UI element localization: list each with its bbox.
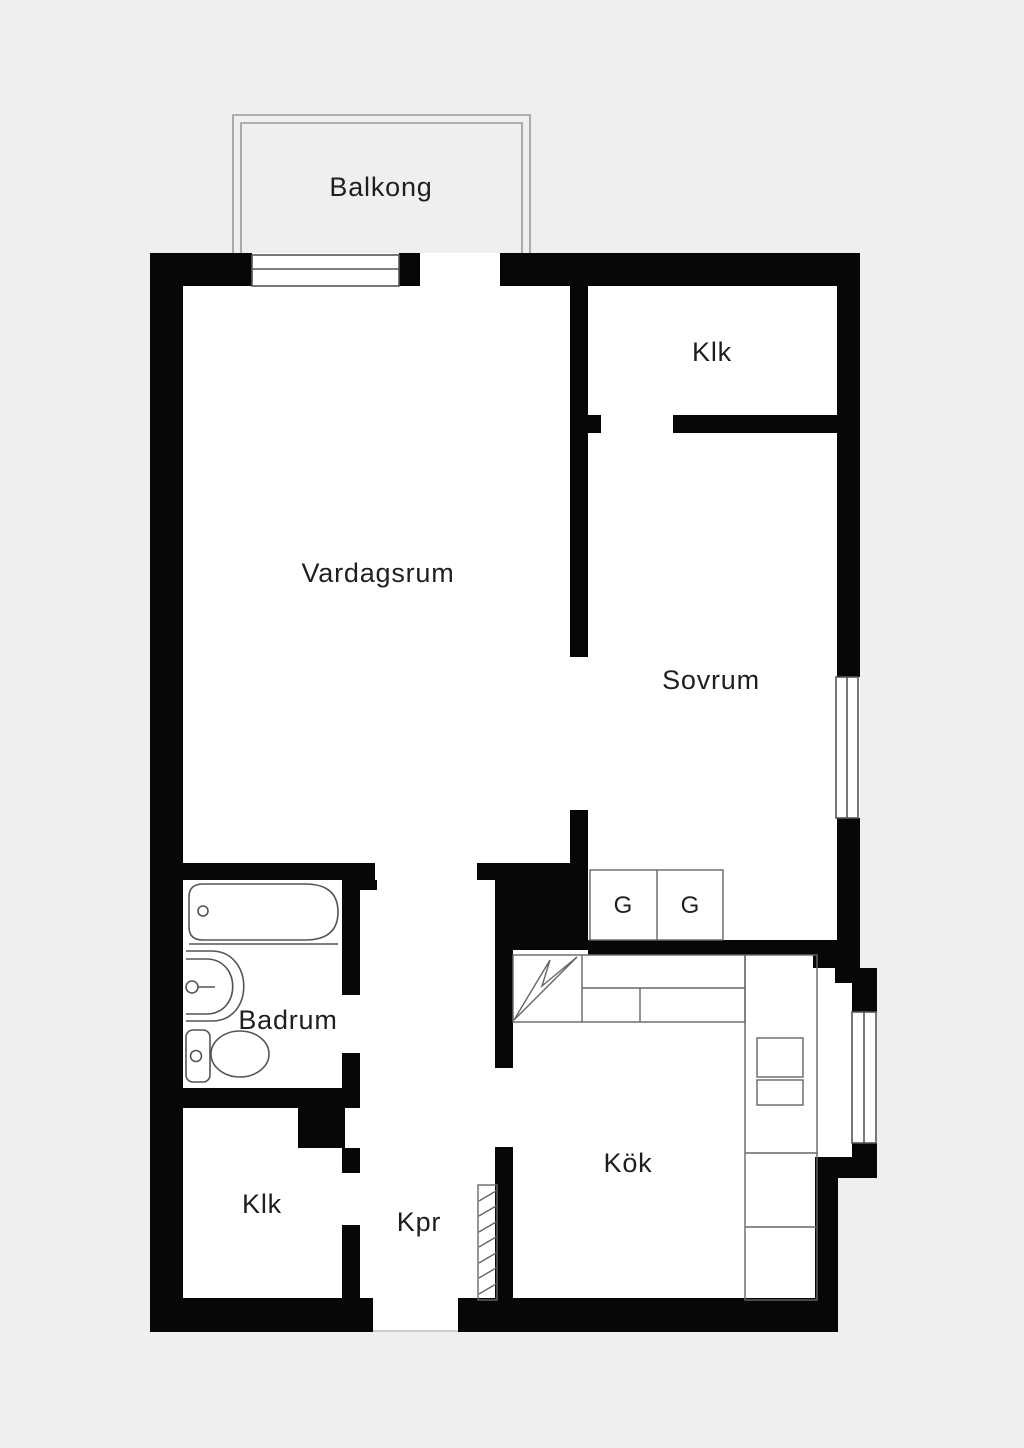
wall-bay-bottom-b [815, 1157, 877, 1178]
wall-klk2-bottom-merge [342, 1298, 373, 1332]
room-label-klk-bottom: Klk [242, 1189, 282, 1219]
wall-top-right [500, 253, 860, 286]
wall-bottom-right [458, 1298, 838, 1332]
room-label-balkong: Balkong [329, 172, 432, 202]
wall-kok-left-upper [495, 950, 513, 1068]
wall-top-stub [399, 253, 420, 286]
wall-right-lower [815, 1178, 838, 1332]
balcony-window [252, 255, 399, 286]
sovrum-window [836, 677, 858, 818]
room-label-kok: Kök [604, 1148, 653, 1178]
wall-klk2-right-lower [342, 1225, 360, 1300]
room-label-sovrum: Sovrum [662, 665, 760, 695]
room-label-vardagsrum: Vardagsrum [301, 558, 454, 588]
wardrobe-left-label: G [614, 892, 633, 919]
room-label-kpr: Kpr [397, 1207, 441, 1237]
wall-badrum-top [183, 863, 375, 880]
wall-sovrum-bottom [588, 940, 860, 955]
wall-klk2-corner-block [298, 1105, 345, 1148]
wall-top-left-block [150, 253, 252, 286]
wall-right-upper [837, 286, 860, 677]
wall-klk-bottom [673, 415, 837, 433]
wall-bay-top-a [813, 955, 860, 968]
kok-bay-window [852, 1012, 876, 1143]
room-label-klk-top: Klk [692, 337, 732, 367]
wall-klk-bottom-stub [588, 415, 601, 433]
wall-klk-divider [570, 286, 588, 657]
wall-bottom-left [150, 1298, 373, 1332]
wall-left [150, 286, 183, 1332]
wall-hall-bar [477, 863, 588, 880]
wall-bay-top-c [852, 983, 877, 1012]
wall-bay-top-b [835, 968, 877, 983]
wall-hall-block [495, 880, 588, 950]
wall-badrum-top-stub [360, 880, 377, 890]
wardrobe-right-label: G [681, 892, 700, 919]
floorplan-canvas: G G Balkong Vardagsrum Klk Sovrum Bad [0, 0, 1024, 1448]
wall-klk2-right-upper [342, 1148, 360, 1173]
apartment-floor [150, 253, 877, 1332]
room-label-badrum: Badrum [238, 1005, 337, 1035]
wall-badrum-right-upper [342, 880, 360, 995]
wall-right-mid [837, 818, 860, 942]
wall-kok-left-lower [495, 1147, 513, 1300]
